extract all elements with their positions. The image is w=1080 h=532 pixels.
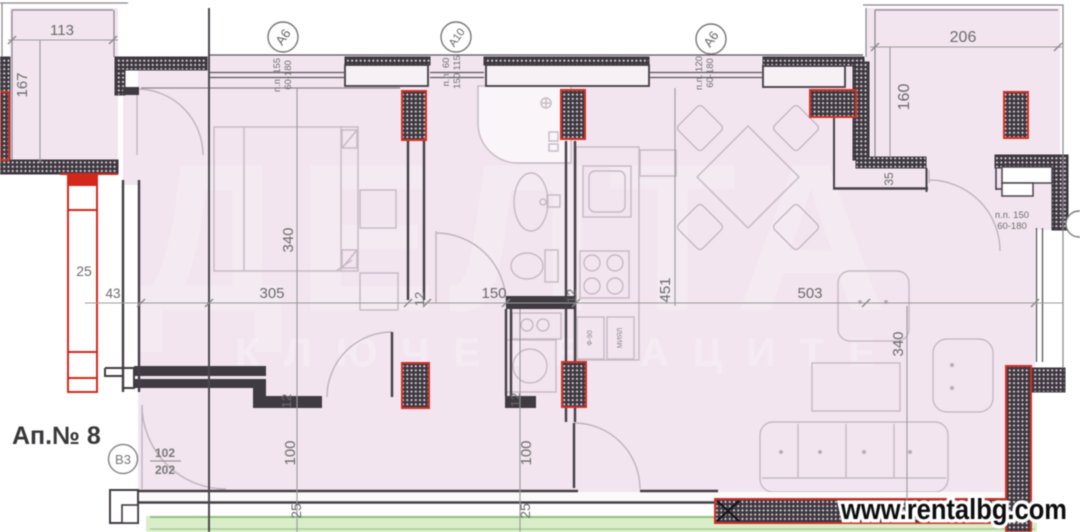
svg-text:25: 25 bbox=[288, 503, 304, 519]
svg-text:В3: В3 bbox=[115, 452, 131, 467]
svg-text:206: 206 bbox=[950, 29, 977, 46]
svg-text:60-180: 60-180 bbox=[997, 221, 1027, 232]
svg-text:35: 35 bbox=[882, 172, 896, 186]
svg-text:п.п. 155: п.п. 155 bbox=[272, 58, 283, 92]
svg-text:150 115: 150 115 bbox=[452, 55, 463, 89]
svg-text:150: 150 bbox=[481, 285, 506, 302]
svg-text:25: 25 bbox=[76, 263, 92, 279]
svg-text:305: 305 bbox=[259, 285, 284, 302]
svg-text:60-180: 60-180 bbox=[705, 58, 716, 88]
svg-text:100: 100 bbox=[282, 440, 299, 465]
svg-text:340: 340 bbox=[890, 331, 907, 356]
svg-text:п.п. 150: п.п. 150 bbox=[995, 210, 1029, 221]
svg-text:Ф-90: Ф-90 bbox=[587, 330, 594, 346]
svg-text:Ап.№ 8: Ап.№ 8 bbox=[12, 422, 101, 450]
svg-text:160: 160 bbox=[896, 84, 913, 111]
svg-text:п.п. 60: п.п. 60 bbox=[441, 58, 452, 87]
svg-text:340: 340 bbox=[280, 227, 297, 252]
svg-text:12: 12 bbox=[564, 289, 579, 303]
svg-text:п.п. 120: п.п. 120 bbox=[694, 56, 705, 90]
svg-text:МИЯЛ: МИЯЛ bbox=[617, 327, 624, 348]
svg-text:451: 451 bbox=[657, 277, 674, 302]
svg-text:25: 25 bbox=[517, 503, 533, 519]
svg-text:100: 100 bbox=[518, 440, 535, 465]
svg-text:167: 167 bbox=[14, 72, 31, 97]
svg-text:43: 43 bbox=[105, 286, 120, 301]
svg-text:202: 202 bbox=[155, 463, 175, 477]
svg-text:12: 12 bbox=[508, 393, 523, 407]
svg-text:12: 12 bbox=[412, 292, 427, 306]
svg-text:60-180: 60-180 bbox=[283, 60, 294, 90]
svg-text:12: 12 bbox=[279, 394, 294, 408]
svg-text:113: 113 bbox=[50, 22, 74, 39]
svg-text:102: 102 bbox=[155, 446, 175, 460]
svg-text:503: 503 bbox=[797, 285, 822, 302]
svg-text:www.rentalbg.com: www.rentalbg.com bbox=[840, 494, 1067, 526]
